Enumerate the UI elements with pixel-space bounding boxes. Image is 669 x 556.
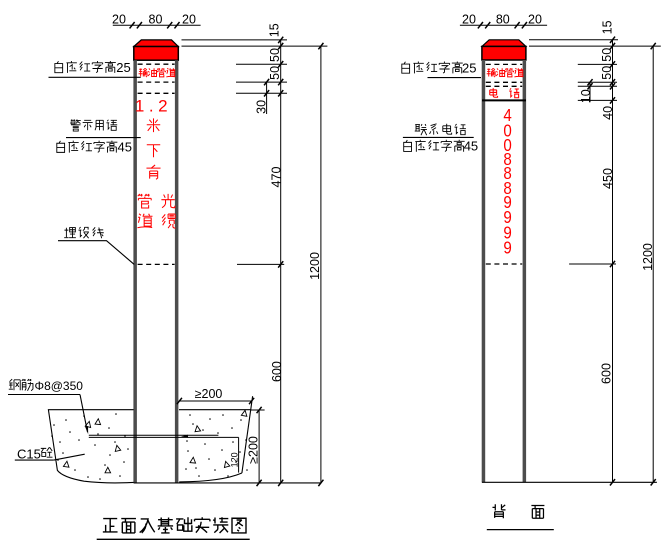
svg-text:45: 45 <box>118 140 132 155</box>
svg-text:25: 25 <box>462 60 476 75</box>
svg-text:10: 10 <box>579 89 593 103</box>
svg-text:1.2: 1.2 <box>135 96 172 115</box>
svg-text:1200: 1200 <box>308 252 322 280</box>
svg-text:≥200: ≥200 <box>195 387 223 401</box>
svg-text:470: 470 <box>269 167 283 188</box>
svg-text:9: 9 <box>503 237 511 258</box>
svg-text:20: 20 <box>528 13 542 27</box>
svg-text:600: 600 <box>599 363 613 384</box>
svg-text:20: 20 <box>182 13 196 27</box>
svg-text:120: 120 <box>229 452 239 467</box>
svg-text:50: 50 <box>268 48 282 62</box>
svg-text:1200: 1200 <box>641 243 655 271</box>
svg-text:50: 50 <box>600 48 614 62</box>
svg-text:≥200: ≥200 <box>246 436 260 464</box>
svg-text:20: 20 <box>112 13 126 27</box>
svg-text:20: 20 <box>462 13 476 27</box>
svg-text:C15: C15 <box>17 446 41 461</box>
svg-text:30: 30 <box>255 100 269 114</box>
svg-text:50: 50 <box>600 66 614 80</box>
svg-text:80: 80 <box>496 13 510 27</box>
svg-text:15: 15 <box>267 23 281 37</box>
svg-text:15: 15 <box>600 20 614 34</box>
svg-text:80: 80 <box>149 13 163 27</box>
svg-text:45: 45 <box>464 139 478 154</box>
svg-text:25: 25 <box>116 60 130 75</box>
svg-text:50: 50 <box>268 66 282 80</box>
svg-text:Φ8@350: Φ8@350 <box>35 379 84 393</box>
svg-text:600: 600 <box>270 361 284 382</box>
svg-text:450: 450 <box>601 168 615 189</box>
svg-text:40: 40 <box>601 106 615 120</box>
